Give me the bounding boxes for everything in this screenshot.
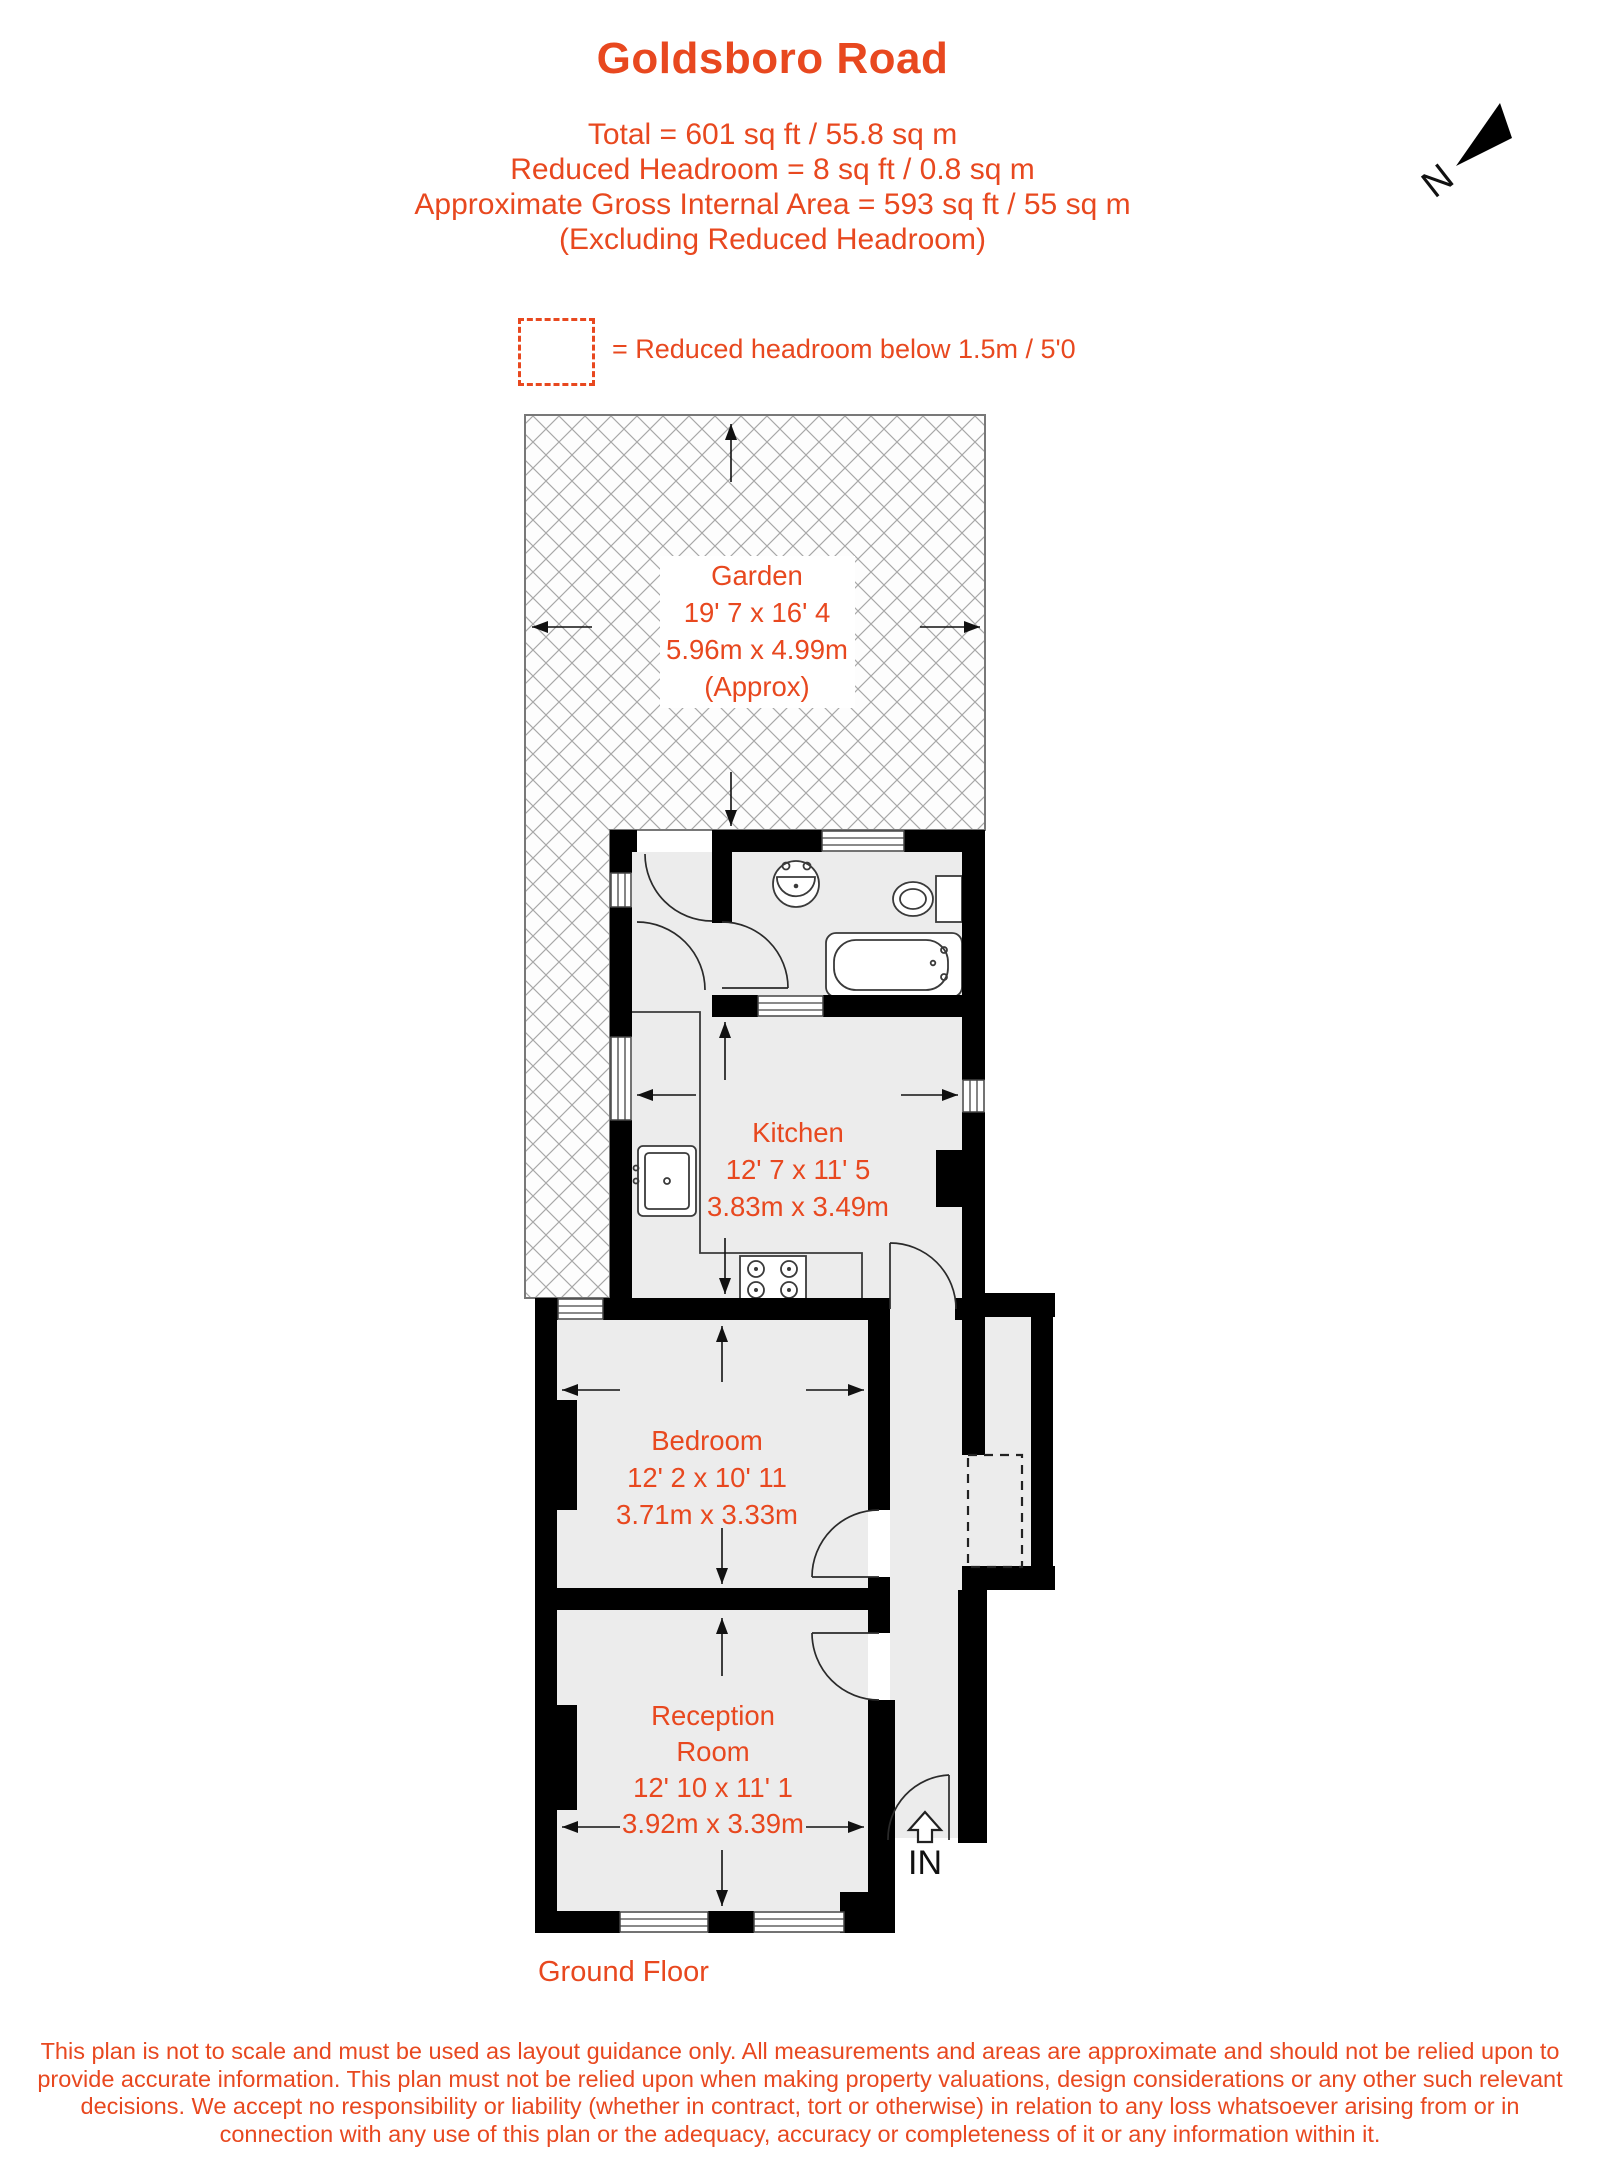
kitchen-name: Kitchen [752,1117,844,1148]
basin-icon [773,861,819,907]
disclaimer-line-1: This plan is not to scale and must be us… [0,2038,1600,2066]
kitchen-window [611,1037,631,1120]
reduced-headroom-line: Reduced Headroom = 8 sq ft / 0.8 sq m [0,153,1545,187]
excluding-note-line: (Excluding Reduced Headroom) [0,223,1545,257]
reception-metric: 3.92m x 3.39m [622,1808,804,1839]
kitchen-imperial: 12' 7 x 11' 5 [726,1154,871,1185]
floor-plan-drawing: IN N Garden 19' 7 x 16' 4 5.96m x 4.99m … [0,0,1600,2169]
bathtub-icon [826,933,962,997]
garden-metric: 5.96m x 4.99m [666,634,848,665]
garden-name: Garden [711,560,803,591]
total-area-line: Total = 601 sq ft / 55.8 sq m [0,118,1545,152]
garden-imperial: 19' 7 x 16' 4 [684,597,831,628]
reception-name-1: Reception [651,1700,775,1731]
kitchen-side-window [963,1080,984,1112]
bedroom-name: Bedroom [651,1425,763,1456]
floorplan-page: IN N Garden 19' 7 x 16' 4 5.96m x 4.99m … [0,0,1600,2169]
reduced-headroom-legend-swatch [518,318,595,386]
reception-window-left [620,1912,708,1932]
gross-internal-area-line: Approximate Gross Internal Area = 593 sq… [0,188,1545,222]
hob-icon [740,1256,806,1302]
reduced-headroom-legend-text: = Reduced headroom below 1.5m / 5'0 [612,334,1076,365]
garden-note: (Approx) [704,671,809,702]
entrance-label: IN [908,1844,942,1882]
lobby-window [611,873,631,907]
disclaimer: This plan is not to scale and must be us… [0,2038,1600,2148]
disclaimer-line-4: connection with any use of this plan or … [0,2121,1600,2149]
page-title: Goldsboro Road [0,34,1545,84]
bath-screen-panel [758,996,823,1016]
bedroom-metric: 3.71m x 3.33m [616,1499,798,1530]
kitchen-sink [634,1146,697,1216]
reception-window-right [754,1912,844,1932]
disclaimer-line-3: decisions. We accept no responsibility o… [0,2093,1600,2121]
reception-name-2: Room [676,1736,749,1767]
kitchen-metric: 3.83m x 3.49m [707,1191,889,1222]
bedroom-step-window [558,1299,603,1319]
bedroom-imperial: 12' 2 x 10' 11 [627,1462,787,1493]
floor-name-label: Ground Floor [538,1956,709,1989]
disclaimer-line-2: provide accurate information. This plan … [0,2066,1600,2094]
bathroom-window [822,831,904,851]
reception-imperial: 12' 10 x 11' 1 [633,1772,793,1803]
